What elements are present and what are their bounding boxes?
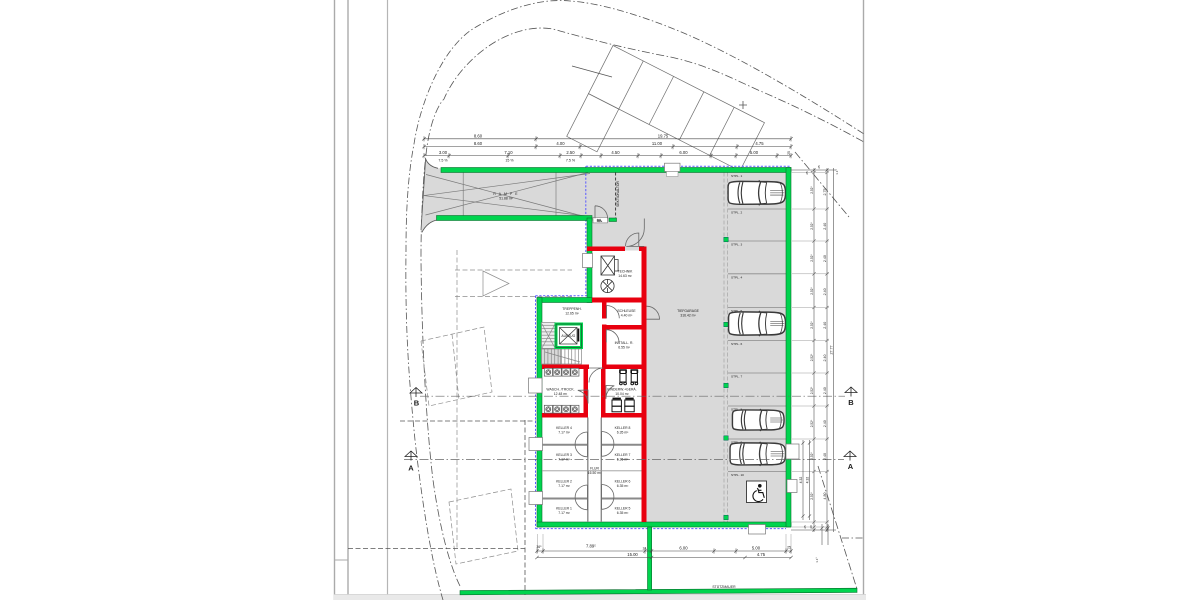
svg-text:24: 24 [643,547,647,551]
svg-text:2.52⁵: 2.52⁵ [810,186,814,194]
svg-text:25: 25 [803,525,807,529]
svg-text:51.88 m²: 51.88 m² [499,197,513,201]
svg-text:2.52⁵: 2.52⁵ [810,419,814,427]
svg-text:STPL. 10: STPL. 10 [731,473,744,477]
svg-text:2.40: 2.40 [823,420,827,427]
svg-text:7.10: 7.10 [504,150,513,155]
svg-text:A: A [408,464,414,473]
svg-text:STPL. 2: STPL. 2 [731,211,742,215]
svg-text:8.60: 8.60 [474,141,483,146]
svg-text:8.60: 8.60 [474,133,483,138]
svg-text:12.48 m²: 12.48 m² [554,392,568,396]
svg-text:25: 25 [787,546,791,550]
svg-text:6.00: 6.00 [679,150,688,155]
svg-text:2.40: 2.40 [823,453,827,460]
svg-text:SEKTIONALTOR: SEKTIONALTOR [616,181,620,207]
svg-text:27.77: 27.77 [830,346,834,355]
svg-text:6.35 m²: 6.35 m² [617,511,629,515]
svg-text:11.00: 11.00 [652,141,663,146]
svg-text:STPL. 3: STPL. 3 [731,243,742,247]
svg-text:2.52⁵: 2.52⁵ [810,287,814,295]
svg-text:STPL. 1: STPL. 1 [731,174,742,178]
svg-text:NA.: NA. [597,219,602,223]
svg-text:4.40 m²: 4.40 m² [621,313,633,317]
svg-text:7.17 m²: 7.17 m² [558,457,570,461]
svg-text:2.50: 2.50 [566,150,575,155]
svg-text:4.32: 4.32 [806,477,810,484]
svg-text:7.89⁵: 7.89⁵ [586,544,596,549]
svg-text:4.75: 4.75 [755,141,764,146]
svg-text:2.52⁵: 2.52⁵ [810,452,814,460]
svg-text:STPL. 4: STPL. 4 [731,275,742,279]
svg-text:7.5 %: 7.5 % [438,158,448,162]
svg-text:5.00: 5.00 [750,150,759,155]
svg-text:7.5 %: 7.5 % [566,158,576,162]
svg-text:25: 25 [787,151,791,155]
svg-text:19.75: 19.75 [658,133,669,138]
svg-text:2.40: 2.40 [823,288,827,295]
svg-text:R A M P E: R A M P E [493,192,518,196]
svg-text:6.35 m²: 6.35 m² [617,430,629,434]
svg-text:25: 25 [805,171,809,175]
svg-text:B: B [414,399,420,408]
svg-text:A: A [848,462,854,471]
svg-text:1.1⁵: 1.1⁵ [815,557,819,563]
svg-text:3.00: 3.00 [439,150,448,155]
svg-text:12.65 m²: 12.65 m² [565,311,579,315]
svg-text:16.50 m²: 16.50 m² [588,471,602,475]
svg-text:15.00: 15.00 [627,552,638,557]
svg-text:14.63 m²: 14.63 m² [618,274,632,278]
svg-text:2.40: 2.40 [823,322,827,329]
svg-text:2.40: 2.40 [823,387,827,394]
svg-text:20: 20 [809,525,813,529]
svg-text:4.80: 4.80 [823,493,827,500]
svg-text:2.52⁵: 2.52⁵ [810,353,814,361]
svg-text:6.55 m²: 6.55 m² [618,345,630,349]
svg-text:STÜTZMAUER: STÜTZMAUER [712,585,736,589]
svg-text:4.32: 4.32 [799,477,803,484]
svg-text:6.00: 6.00 [679,546,688,551]
svg-text:STPL. 6: STPL. 6 [731,342,742,346]
svg-text:7.17 m²: 7.17 m² [558,484,570,488]
svg-text:6.35 m²: 6.35 m² [617,484,629,488]
svg-text:2.52⁵: 2.52⁵ [810,254,814,262]
svg-text:2.40: 2.40 [823,354,827,361]
svg-text:15 %: 15 % [505,158,514,162]
svg-text:2.40: 2.40 [823,223,827,230]
svg-text:316.42 m²: 316.42 m² [680,313,696,317]
svg-text:2.52⁵: 2.52⁵ [810,492,814,500]
svg-text:5.00: 5.00 [752,546,761,551]
svg-text:2.52⁵: 2.52⁵ [810,321,814,329]
svg-text:36⁵: 36⁵ [536,545,542,549]
svg-text:B: B [848,398,854,407]
svg-text:2.52⁵: 2.52⁵ [810,386,814,394]
svg-text:1.1⁵: 1.1⁵ [835,169,839,175]
svg-text:2.52⁵: 2.52⁵ [810,222,814,230]
svg-text:4.50: 4.50 [611,150,620,155]
svg-text:25: 25 [817,165,821,169]
svg-text:2.40: 2.40 [823,255,827,262]
svg-text:10.04 m²: 10.04 m² [615,392,629,396]
svg-text:7.17 m²: 7.17 m² [558,430,570,434]
svg-text:STPL. 7: STPL. 7 [731,375,742,379]
svg-text:4.00: 4.00 [556,141,565,146]
svg-text:2.75: 2.75 [823,188,827,195]
svg-text:4.75: 4.75 [757,552,766,557]
svg-text:7.17 m²: 7.17 m² [558,511,570,515]
svg-text:AUFZUG: AUFZUG [561,334,575,338]
svg-text:6.26 m²: 6.26 m² [617,457,629,461]
